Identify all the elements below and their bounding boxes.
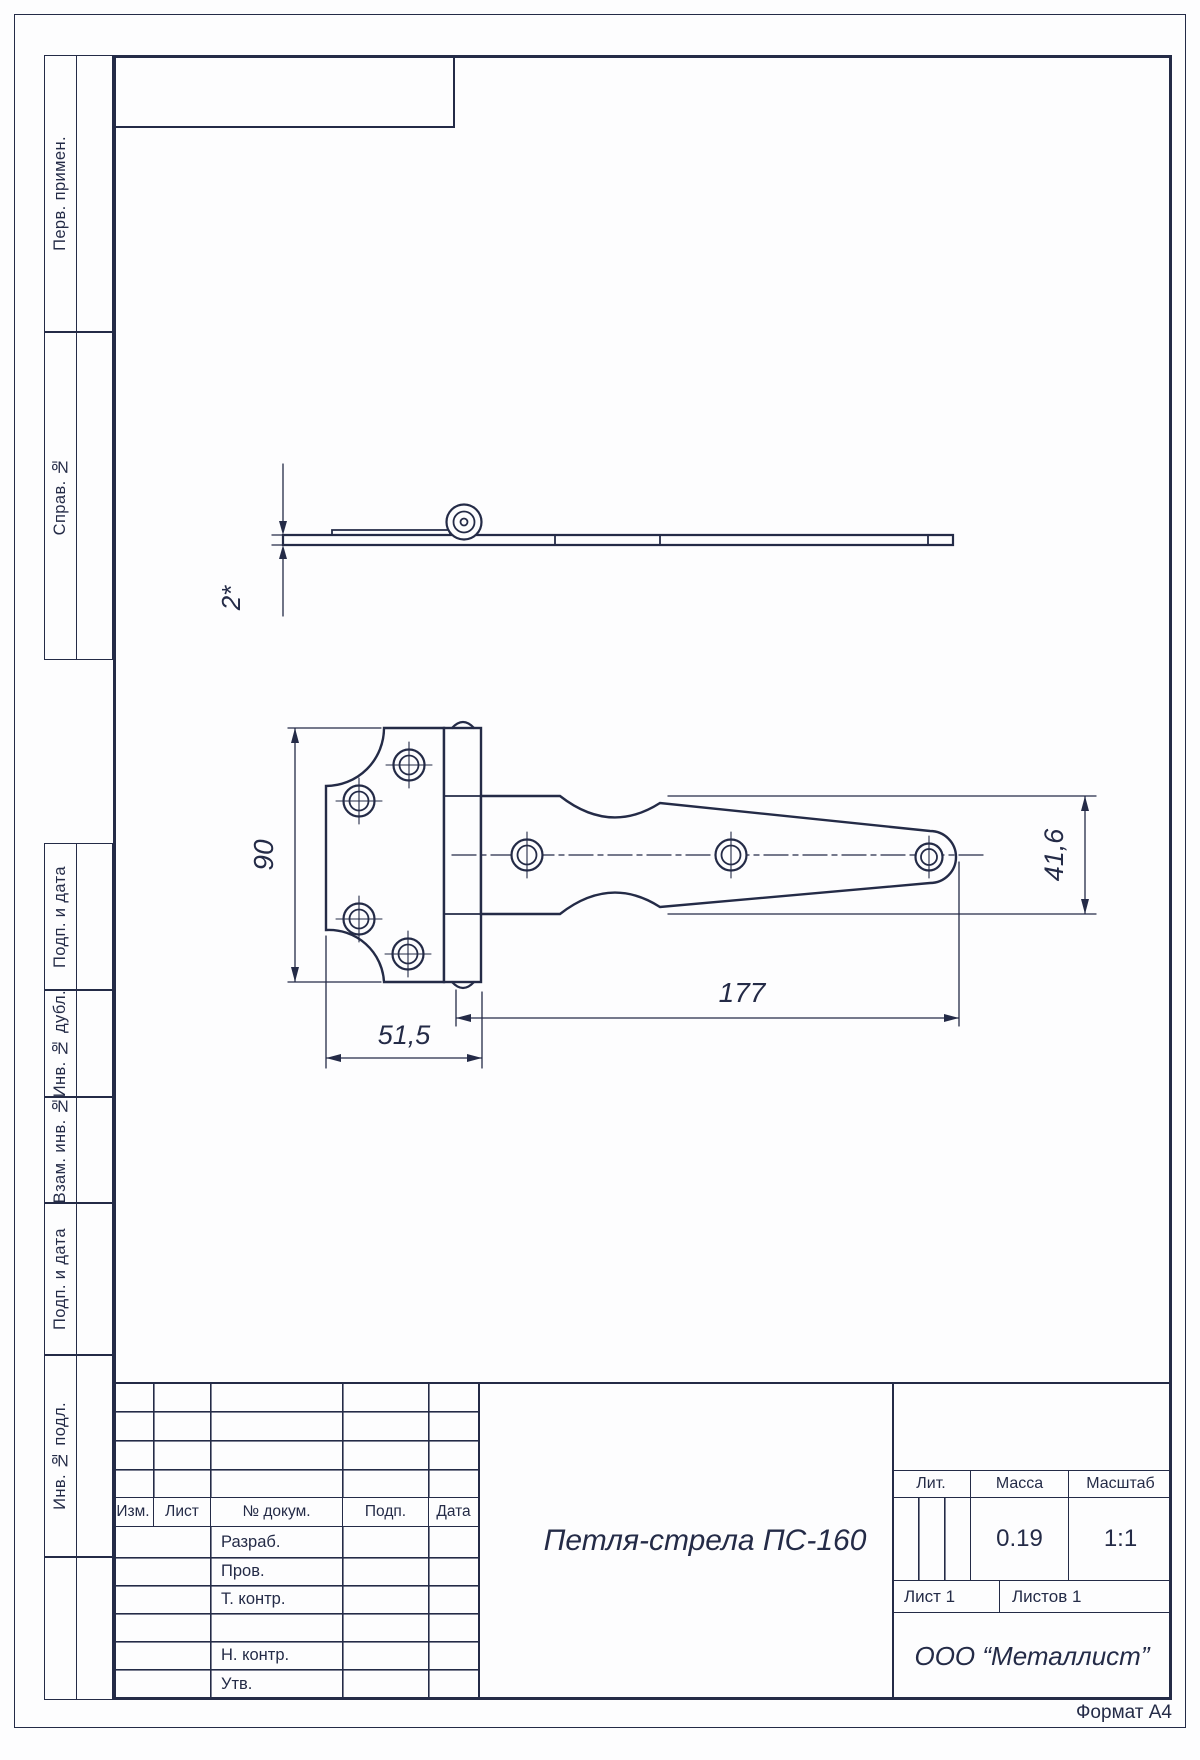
sidebar-label: Взам. инв. № <box>51 1096 70 1203</box>
sidebar-cell-podp-i-data-1: Подп. и дата <box>44 843 113 990</box>
dim-plate-height: 90 <box>248 839 279 871</box>
drawing-canvas: 2* <box>113 55 1172 1382</box>
sidebar-label-box: Перв. примен. <box>45 56 77 331</box>
edge-view: 2* <box>216 464 953 616</box>
mass-value: 0.19 <box>996 1525 1043 1553</box>
dim-thickness: 2* <box>216 585 246 611</box>
doc-title-box: Петля-стрела ПС-160 <box>478 1382 892 1700</box>
doc-title: Петля-стрела ПС-160 <box>544 1524 867 1558</box>
sidebar-label: Подп. и дата <box>51 1228 70 1330</box>
hinge-knuckle-edge <box>447 505 482 540</box>
company-name: ООО “Металлист” <box>914 1641 1149 1672</box>
drawing-sheet: Перв. примен. Справ. № Подп. и дата Инв.… <box>0 0 1200 1760</box>
sidebar-cell-inv-no-dubl: Инв. № дубл. <box>44 990 113 1097</box>
sidebar-label-box: Инв. № дубл. <box>45 991 77 1096</box>
col-doc: № докум. <box>210 1498 342 1526</box>
sidebar-label: Инв. № подл. <box>51 1402 70 1510</box>
mass-value-cell: 0.19 <box>970 1498 1068 1580</box>
sidebar-cell-podp-i-data-2: Подп. и дата <box>44 1203 113 1355</box>
sidebar-label-box <box>45 1558 77 1699</box>
sidebar-label-box: Подп. и дата <box>45 844 77 989</box>
scale-label: Масштаб <box>1068 1471 1172 1497</box>
sig-row-utv: Утв. <box>213 1669 339 1700</box>
sidebar-cell-vzam-inv-no: Взам. инв. № <box>44 1097 113 1203</box>
sidebar-cell-empty <box>44 1557 113 1700</box>
sidebar-label-box: Справ. № <box>45 333 77 659</box>
sidebar-label-box: Подп. и дата <box>45 1204 77 1354</box>
dim-strap-width: 41,6 <box>1039 828 1069 882</box>
sidebar-label-box: Инв. № подл. <box>45 1356 77 1556</box>
company-box: ООО “Металлист” <box>892 1613 1172 1700</box>
col-list: Лист <box>153 1498 210 1526</box>
sidebar-label: Справ. № <box>51 457 70 535</box>
sidebar-cell-inv-no-podl: Инв. № подл. <box>44 1355 113 1557</box>
sidebar-label: Подп. и дата <box>51 866 70 968</box>
sidebar-label-box: Взам. инв. № <box>45 1098 77 1202</box>
sidebar-label: Инв. № дубл. <box>51 990 70 1097</box>
main-view: 90 41,6 177 51,5 <box>248 722 1096 1068</box>
sheets-row: Лист 1 Листов 1 <box>892 1580 1172 1613</box>
mass-label: Масса <box>970 1471 1068 1497</box>
sig-row-t-kontr: Т. контр. <box>213 1585 339 1613</box>
lit-label: Лит. <box>892 1471 970 1497</box>
sheets-cell: Листов 1 <box>999 1581 1172 1612</box>
sig-row-razrab: Разраб. <box>213 1527 339 1557</box>
hinge-plate-outline <box>326 728 444 982</box>
sidebar-label: Перв. примен. <box>51 136 70 251</box>
lit-cells <box>892 1498 970 1580</box>
revision-rows-grid <box>113 1382 478 1497</box>
dim-plate-width: 51,5 <box>378 1020 432 1050</box>
revision-header-row: Изм. Лист № докум. Подп. Дата <box>113 1497 478 1527</box>
sig-row-n-kontr: Н. контр. <box>213 1641 339 1669</box>
sidebar-cell-perv-primen: Перв. примен. <box>44 55 113 332</box>
scale-value: 1:1 <box>1104 1525 1137 1553</box>
sheet-cell: Лист 1 <box>892 1581 999 1612</box>
col-podp: Подп. <box>342 1498 428 1526</box>
sig-row-prov: Пров. <box>213 1557 339 1585</box>
col-izm: Изм. <box>113 1498 153 1526</box>
sig-row-empty <box>213 1613 339 1641</box>
scale-value-cell: 1:1 <box>1068 1498 1172 1580</box>
col-data: Дата <box>428 1498 478 1526</box>
format-label: Формат А4 <box>952 1702 1172 1724</box>
dim-strap-length: 177 <box>719 977 767 1008</box>
lit-mass-scale-header: Лит. Масса Масштаб <box>892 1470 1172 1498</box>
sidebar-cell-sprav-no: Справ. № <box>44 332 113 660</box>
